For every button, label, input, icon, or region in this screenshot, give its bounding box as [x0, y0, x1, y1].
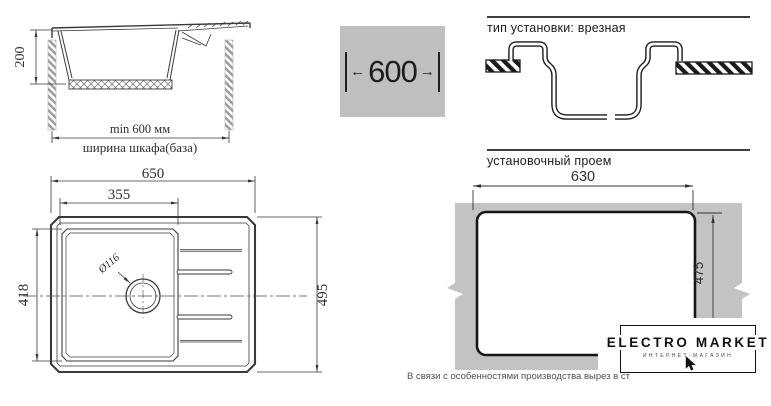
- cursor-icon: [685, 356, 697, 371]
- divider-top: [487, 16, 750, 18]
- right-limit-bar: [438, 52, 440, 92]
- cabinet-width-badge: ← 600 →: [340, 26, 445, 117]
- sink-body: [51, 217, 255, 372]
- cabinet-base-label: ширина шкафа(база): [83, 140, 197, 155]
- arrow-left-icon: ←: [350, 64, 365, 79]
- divider-middle: [487, 149, 750, 151]
- sink-spec-sheet: 200 min 600 мм ширина шкафа(база) ← 600 …: [0, 0, 771, 406]
- length-dimension-label: 495: [315, 284, 331, 307]
- dimension-bowl-depth: [32, 229, 62, 361]
- install-type-heading: тип установки: врезная: [487, 21, 626, 35]
- countertop-sections: [486, 60, 752, 74]
- sink-rim-profile: [511, 44, 680, 117]
- arrow-right-icon: →: [420, 64, 435, 79]
- side-view-diagram: 200 min 600 мм ширина шкафа(база): [0, 0, 320, 160]
- cutout-height-label: 475: [691, 262, 706, 285]
- sink-profile: [52, 21, 250, 89]
- top-view-diagram: Ø116 650 355 418 495: [15, 165, 345, 390]
- dimension-length: [257, 217, 322, 372]
- bowl-depth-dimension-label: 418: [16, 284, 32, 307]
- drain-leader: [118, 272, 130, 283]
- left-limit-bar: [345, 52, 347, 92]
- width-value: 600: [368, 56, 417, 87]
- install-section-diagram: [480, 40, 770, 132]
- production-footnote: В связи с особенностями производства выр…: [407, 371, 630, 382]
- depth-dimension-label: 200: [13, 47, 28, 68]
- bowl-width-dimension-label: 355: [108, 187, 131, 203]
- width-dimension-label: 650: [142, 166, 165, 182]
- min-width-label: min 600 мм: [110, 122, 170, 136]
- brand-logo: ELECTRO MARKET ИНТЕРНЕТ-МАГАЗИН: [620, 325, 756, 373]
- brand-name: ELECTRO MARKET: [603, 335, 771, 350]
- cutout-width-label: 630: [571, 169, 595, 185]
